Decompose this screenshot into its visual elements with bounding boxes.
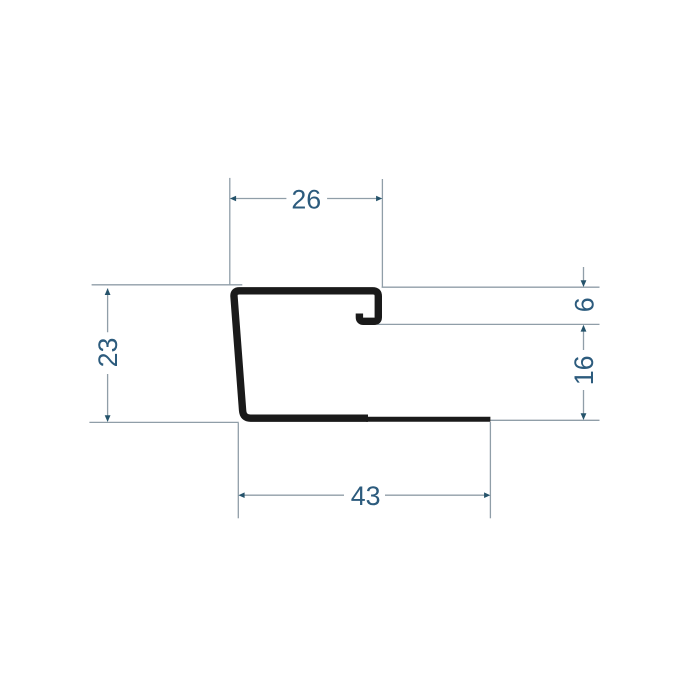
svg-text:6: 6 xyxy=(569,297,599,312)
svg-text:16: 16 xyxy=(569,355,599,385)
svg-text:23: 23 xyxy=(93,338,123,368)
svg-text:43: 43 xyxy=(351,481,381,511)
svg-text:26: 26 xyxy=(291,185,321,215)
